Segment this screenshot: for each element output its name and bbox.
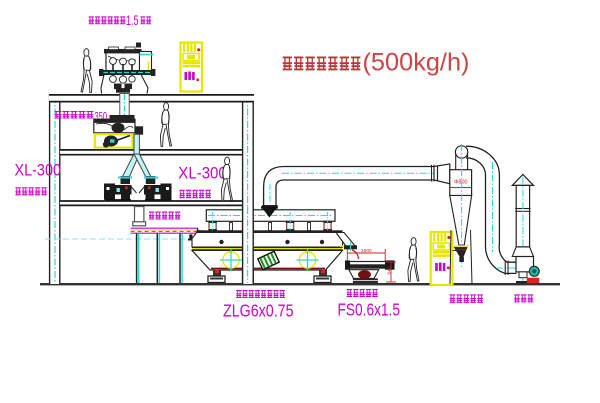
svg-text:545: 545 [387,266,393,274]
svg-text:XL-300: XL-300 [15,161,62,180]
svg-text:(500kg/h): (500kg/h) [363,49,470,77]
svg-text:ZLG6x0.75: ZLG6x0.75 [223,301,294,321]
svg-text:XL-300: XL-300 [178,164,227,183]
svg-text:1500: 1500 [361,248,372,254]
svg-text:1.5: 1.5 [126,13,139,28]
svg-text:Φ800: Φ800 [454,180,468,186]
svg-text:FS0.6x1.5: FS0.6x1.5 [338,300,401,320]
